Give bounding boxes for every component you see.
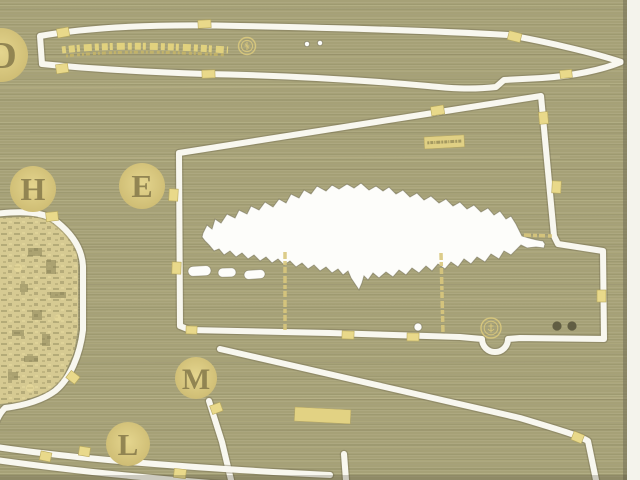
scratch-line <box>0 299 640 300</box>
fret-tab <box>430 105 444 116</box>
fret-tab <box>56 63 69 74</box>
anti-slip-speckle-texture <box>62 46 228 50</box>
part-l <box>0 446 330 480</box>
anti-slip-speckle-texture <box>66 52 225 56</box>
fret-tab <box>78 446 90 457</box>
etched-mark <box>46 260 56 274</box>
half-etched-plate <box>294 407 351 424</box>
etched-dark-dot <box>567 321 576 330</box>
fret-tab <box>597 290 606 302</box>
fret-tab <box>407 333 419 341</box>
part-label-l: L <box>106 422 150 466</box>
scratch-line <box>40 398 640 399</box>
etched-mark <box>24 356 38 362</box>
fret-tab <box>46 211 59 221</box>
etched-mark <box>20 284 28 292</box>
label-letter-m: M <box>182 363 210 396</box>
rivet-hole <box>304 41 309 46</box>
maker-mark-e-icon <box>481 318 501 338</box>
etched-mark <box>32 310 42 320</box>
part-e-panel <box>169 96 606 352</box>
label-letter-d: D <box>0 35 17 77</box>
etch-sheet-graphic: D H E M L <box>0 0 640 480</box>
fret-tab <box>202 70 215 78</box>
fret-tab <box>198 20 211 29</box>
part-d <box>40 20 621 89</box>
part-label-h: H <box>10 166 56 212</box>
scan-margin-right <box>627 0 640 480</box>
label-letter-h: H <box>21 171 46 207</box>
fret-tab <box>552 181 562 193</box>
fret-tab <box>538 112 548 125</box>
scratch-line <box>0 430 620 431</box>
drill-hole <box>414 323 422 331</box>
slot-hole <box>244 269 266 279</box>
part-m <box>209 349 596 480</box>
etched-mark <box>50 292 66 298</box>
etched-mark <box>55 315 62 322</box>
part-m-outline-rim <box>220 349 596 480</box>
fold-line <box>524 235 552 236</box>
scratch-line <box>0 86 610 88</box>
part-d-cut-outline <box>40 25 621 88</box>
maker-mark-d-icon <box>239 38 256 55</box>
etched-mark <box>14 264 22 272</box>
etched-mark <box>28 248 42 256</box>
fret-tab <box>507 31 522 43</box>
photo-etch-brass-sheet: D H E M L <box>0 0 640 480</box>
part-m-cut-outline <box>220 349 596 480</box>
fret-tab <box>56 27 69 38</box>
fret-tab <box>172 262 181 274</box>
scratch-line <box>0 157 560 158</box>
slot-hole <box>218 268 236 278</box>
scratch-line <box>0 362 600 363</box>
rivet-hole <box>317 40 322 45</box>
etched-nameplate <box>424 135 465 149</box>
part-label-d: D <box>0 28 28 82</box>
fret-tab <box>560 69 573 78</box>
part-label-e: E <box>119 163 165 209</box>
slot-hole <box>188 265 211 276</box>
etched-mark <box>8 372 18 380</box>
fret-tab <box>186 326 197 334</box>
fold-line <box>441 253 443 334</box>
sheet-bottom-edge-shadow <box>0 475 627 480</box>
fret-tab <box>169 189 179 201</box>
etched-mark <box>42 334 50 346</box>
fret-tab <box>39 451 52 462</box>
etched-mark <box>12 330 24 336</box>
label-letter-l: L <box>118 427 139 462</box>
label-letter-e: E <box>131 168 152 204</box>
fret-tab <box>342 331 354 339</box>
part-label-m: M <box>175 357 217 399</box>
etched-mark <box>26 384 34 392</box>
part-h <box>0 211 83 428</box>
sheet-right-edge-shadow <box>623 0 627 480</box>
etched-dark-dot <box>552 321 561 330</box>
